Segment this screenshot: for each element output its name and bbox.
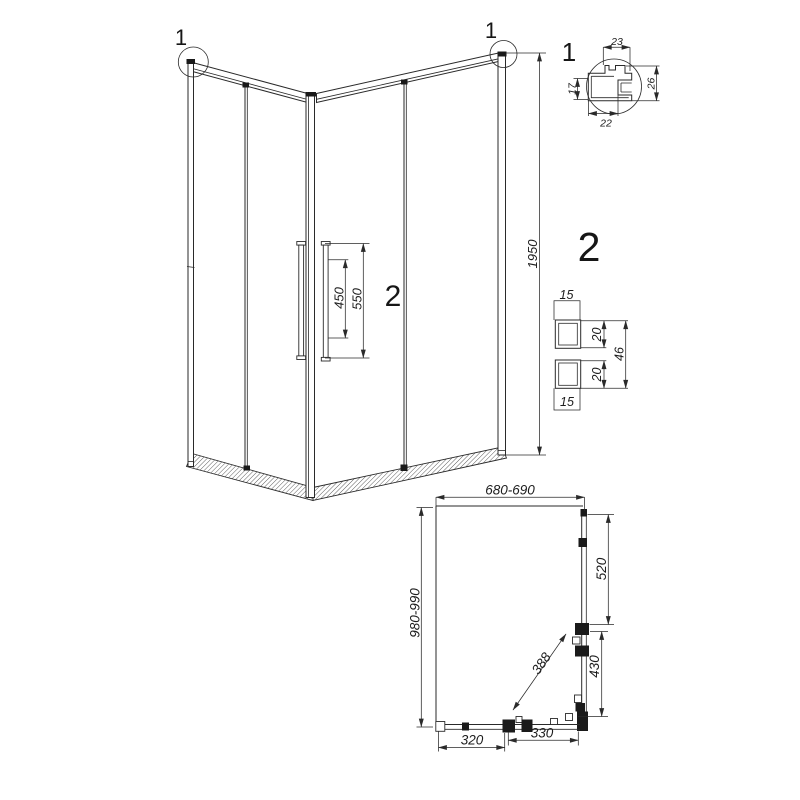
top-rail-left-inner bbox=[193, 69, 308, 100]
dim-text-17: 17 bbox=[567, 82, 579, 95]
plan-bottom-left-bracket bbox=[436, 722, 445, 732]
dim-text-15-top: 15 bbox=[560, 288, 574, 302]
dim-text-430: 430 bbox=[587, 655, 602, 678]
dim-lower-height: 20 bbox=[581, 361, 607, 389]
plan-view: 680-690 980-990 520 430 388 3 bbox=[407, 483, 614, 752]
profile-detail-label: 1 bbox=[562, 37, 576, 67]
roller-block bbox=[503, 720, 516, 733]
dim-bottom-width: 15 bbox=[554, 388, 580, 410]
dim-profile-left: 17 bbox=[567, 79, 589, 100]
rail-block bbox=[579, 538, 588, 547]
dim-handle: 450 550 bbox=[325, 244, 370, 359]
drawing-canvas: 1 1 2 450 550 1950 1 bbox=[0, 0, 800, 800]
dim-text-330: 330 bbox=[531, 726, 554, 741]
dim-text-handle-length: 550 bbox=[350, 287, 365, 309]
panel-detail-view: 2 15 20 46 20 15 bbox=[554, 224, 628, 410]
dim-text-22: 22 bbox=[599, 118, 612, 130]
dim-text-46: 46 bbox=[613, 347, 627, 361]
rail-block bbox=[576, 703, 586, 712]
panel-detail-label: 2 bbox=[578, 224, 601, 270]
rail-clip bbox=[575, 695, 582, 703]
plan-top-right-bracket bbox=[581, 509, 588, 517]
handle-cap bbox=[297, 242, 306, 246]
dim-entry-diagonal: 388 bbox=[513, 634, 566, 710]
dim-text-388: 388 bbox=[529, 649, 554, 676]
callout-label-left: 1 bbox=[175, 25, 187, 50]
top-rail-right bbox=[317, 53, 499, 103]
handle-cap bbox=[297, 356, 306, 360]
dim-text-height: 1950 bbox=[525, 239, 540, 269]
corner-post-cap bbox=[306, 92, 317, 97]
dim-text-520: 520 bbox=[594, 557, 609, 580]
dim-text-320: 320 bbox=[461, 733, 484, 748]
corner-post bbox=[306, 94, 315, 498]
dim-box bbox=[554, 301, 580, 320]
lower-profile bbox=[555, 360, 580, 388]
dim-text-20-lower: 20 bbox=[590, 368, 604, 383]
lower-profile-inner bbox=[559, 363, 578, 385]
wall-post-right bbox=[498, 52, 506, 455]
dim-text-20-upper: 20 bbox=[590, 328, 604, 343]
door-handle-left bbox=[297, 242, 306, 360]
wall-post-left bbox=[188, 60, 194, 467]
rail-clip bbox=[566, 714, 573, 721]
tray-band-left bbox=[187, 454, 314, 501]
dim-text-23: 23 bbox=[610, 36, 623, 48]
top-rail-right-inner bbox=[317, 59, 499, 100]
rail-clip bbox=[573, 637, 581, 644]
dim-text-26: 26 bbox=[646, 78, 658, 91]
right-divider-bottom-roller bbox=[401, 465, 408, 472]
upper-profile bbox=[555, 320, 580, 348]
technical-drawing-shower-enclosure: 1 1 2 450 550 1950 1 bbox=[0, 0, 800, 800]
plan-front-rail bbox=[445, 714, 581, 733]
dim-top-width: 15 bbox=[554, 288, 580, 320]
dim-text-handle-spacing: 450 bbox=[332, 286, 347, 308]
dim-height: 1950 bbox=[502, 53, 546, 455]
roller-block bbox=[575, 646, 589, 657]
profile-detail-view: 1 23 17 26 22 bbox=[562, 36, 660, 130]
plan-right-rail bbox=[573, 517, 590, 732]
dim-plan-depth: 980-990 bbox=[407, 508, 433, 728]
dim-front-door: 330 bbox=[508, 726, 578, 746]
upper-profile-inner bbox=[559, 323, 578, 345]
elevation-view: 1 1 2 450 550 1950 bbox=[175, 18, 546, 501]
handle-bar bbox=[323, 245, 328, 357]
left-divider-top-roller bbox=[243, 83, 250, 88]
dim-plan-width: 680-690 bbox=[436, 483, 585, 512]
wall-post-left-cap bbox=[187, 59, 196, 64]
dim-profile-bottom: 22 bbox=[589, 95, 619, 130]
dim-text-15-bottom: 15 bbox=[560, 395, 574, 409]
corner-block bbox=[577, 712, 588, 732]
dim-text-width: 680-690 bbox=[485, 483, 535, 498]
left-divider-bottom-roller bbox=[244, 466, 251, 471]
tray-band-right bbox=[313, 447, 507, 501]
roller-block bbox=[575, 623, 589, 635]
dim-side-fixed: 520 bbox=[588, 515, 615, 625]
wall-post-right-cap bbox=[498, 52, 507, 57]
elevation-panel-label: 2 bbox=[385, 280, 402, 313]
handle-bar bbox=[299, 245, 304, 356]
dim-text-depth: 980-990 bbox=[407, 588, 422, 638]
rail-clip bbox=[516, 717, 522, 723]
top-rail-left bbox=[193, 63, 308, 103]
callout-label-right: 1 bbox=[485, 18, 497, 43]
rail-clip bbox=[551, 719, 558, 725]
dim-front-fixed: 320 bbox=[439, 732, 505, 752]
right-divider-top-roller bbox=[401, 80, 408, 85]
dim-upper-height: 20 bbox=[581, 321, 628, 348]
profile-detail-circle bbox=[587, 59, 642, 114]
rail-block bbox=[462, 723, 469, 731]
